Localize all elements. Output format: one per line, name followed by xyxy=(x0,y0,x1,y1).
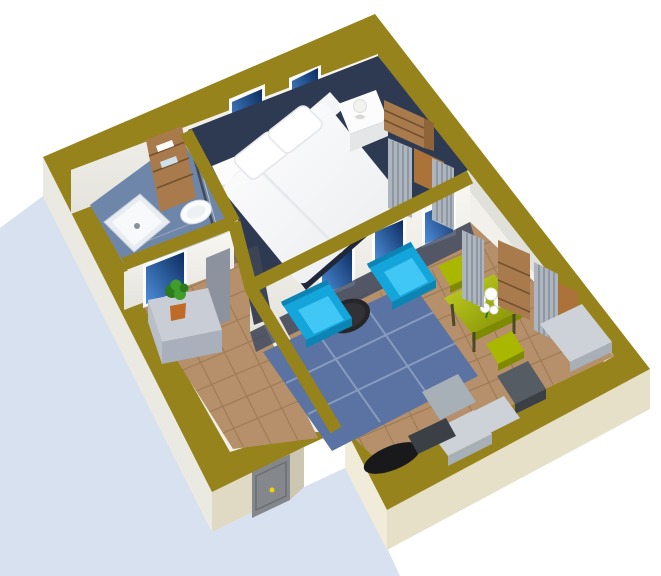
floorplan-stage: 3D isometric floor plan render of a one-… xyxy=(0,0,661,576)
plant-leaf xyxy=(180,284,189,293)
wardrobe-side xyxy=(424,118,434,151)
lamp-base xyxy=(355,115,365,119)
shower-drain xyxy=(134,223,140,229)
table-lamp xyxy=(354,100,367,113)
ladder-shelf xyxy=(498,240,530,320)
floorplan-render: 3D isometric floor plan render of a one-… xyxy=(0,0,661,576)
door-knob xyxy=(270,488,275,493)
plant-pot xyxy=(170,303,186,321)
